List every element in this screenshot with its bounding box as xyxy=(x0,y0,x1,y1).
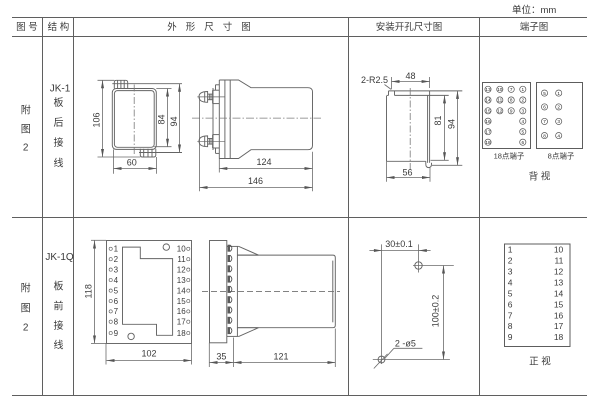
svg-text:1: 1 xyxy=(114,245,119,254)
svg-text:单位：mm: 单位：mm xyxy=(512,4,556,16)
svg-text:18: 18 xyxy=(554,332,564,342)
svg-text:2: 2 xyxy=(508,256,513,266)
svg-text:后: 后 xyxy=(54,117,64,129)
svg-text:94: 94 xyxy=(169,116,179,126)
svg-text:30±0.1: 30±0.1 xyxy=(385,239,412,249)
svg-text:13: 13 xyxy=(177,276,186,285)
svg-text:图 号: 图 号 xyxy=(16,22,38,33)
svg-text:7: 7 xyxy=(543,119,546,124)
svg-text:附: 附 xyxy=(21,104,31,117)
svg-text:15: 15 xyxy=(177,297,186,306)
svg-text:14: 14 xyxy=(554,288,564,298)
svg-text:图: 图 xyxy=(21,124,31,136)
svg-text:15: 15 xyxy=(485,109,491,114)
svg-text:外形尺寸图: 外形尺寸图 xyxy=(167,21,260,33)
svg-text:10: 10 xyxy=(177,245,186,254)
svg-text:2-R2.5: 2-R2.5 xyxy=(361,75,388,85)
svg-text:16: 16 xyxy=(554,310,564,320)
svg-text:9: 9 xyxy=(114,329,119,338)
svg-text:4: 4 xyxy=(521,119,524,124)
svg-text:附: 附 xyxy=(21,282,31,295)
svg-text:1: 1 xyxy=(557,91,560,96)
svg-text:4: 4 xyxy=(557,133,560,138)
svg-text:10: 10 xyxy=(554,245,564,255)
svg-text:2: 2 xyxy=(521,98,524,103)
svg-text:3: 3 xyxy=(557,119,560,124)
svg-text:11: 11 xyxy=(497,98,502,103)
svg-text:13: 13 xyxy=(485,87,491,92)
svg-text:接: 接 xyxy=(54,319,64,332)
svg-text:端子图: 端子图 xyxy=(520,21,549,33)
svg-text:线: 线 xyxy=(54,339,64,352)
svg-text:18点端子: 18点端子 xyxy=(494,151,525,161)
svg-text:2: 2 xyxy=(23,323,29,334)
svg-text:5: 5 xyxy=(543,91,546,96)
svg-text:81: 81 xyxy=(433,115,443,125)
svg-text:11: 11 xyxy=(554,256,563,266)
svg-text:8: 8 xyxy=(543,133,546,138)
svg-text:板: 板 xyxy=(54,96,64,109)
svg-text:12: 12 xyxy=(554,267,564,277)
svg-text:3: 3 xyxy=(114,265,119,274)
svg-text:14: 14 xyxy=(485,98,491,103)
svg-text:17: 17 xyxy=(485,129,491,134)
svg-text:9: 9 xyxy=(508,332,513,342)
svg-text:84: 84 xyxy=(157,114,167,124)
svg-text:8: 8 xyxy=(114,318,119,327)
svg-text:1: 1 xyxy=(521,87,524,92)
svg-text:3: 3 xyxy=(521,109,524,114)
svg-text:6: 6 xyxy=(521,140,524,145)
svg-text:7: 7 xyxy=(114,307,119,316)
svg-text:94: 94 xyxy=(446,119,456,129)
svg-text:106: 106 xyxy=(92,112,102,127)
svg-text:5: 5 xyxy=(114,286,119,295)
svg-text:JK-1: JK-1 xyxy=(50,84,71,95)
svg-text:板: 板 xyxy=(54,279,64,292)
svg-text:7: 7 xyxy=(508,310,513,320)
svg-text:48: 48 xyxy=(405,71,415,81)
svg-text:9: 9 xyxy=(510,109,513,114)
svg-text:4: 4 xyxy=(508,277,513,287)
svg-text:18: 18 xyxy=(485,140,491,145)
svg-text:8: 8 xyxy=(508,321,513,331)
svg-text:1: 1 xyxy=(508,245,513,255)
svg-text:102: 102 xyxy=(141,348,156,358)
svg-text:8点端子: 8点端子 xyxy=(548,151,575,161)
svg-text:35: 35 xyxy=(216,351,226,361)
svg-text:JK-1Q: JK-1Q xyxy=(45,252,74,263)
svg-text:17: 17 xyxy=(177,318,186,327)
svg-text:2: 2 xyxy=(114,255,119,264)
svg-text:接: 接 xyxy=(54,136,64,149)
svg-text:15: 15 xyxy=(554,299,564,309)
svg-text:6: 6 xyxy=(114,297,119,306)
svg-text:118: 118 xyxy=(83,284,93,298)
svg-text:60: 60 xyxy=(127,158,137,168)
svg-text:结 构: 结 构 xyxy=(48,21,70,33)
svg-text:正 视: 正 视 xyxy=(529,355,551,367)
svg-text:100±0.2: 100±0.2 xyxy=(430,295,440,327)
svg-text:16: 16 xyxy=(177,307,186,316)
svg-text:安装开孔尺寸图: 安装开孔尺寸图 xyxy=(376,21,443,33)
svg-text:线: 线 xyxy=(54,157,64,170)
svg-text:13: 13 xyxy=(554,277,564,287)
svg-text:4: 4 xyxy=(114,276,119,285)
svg-text:16: 16 xyxy=(485,119,491,124)
svg-text:前: 前 xyxy=(54,300,64,313)
svg-text:5: 5 xyxy=(508,288,513,298)
svg-text:146: 146 xyxy=(248,176,263,186)
svg-text:56: 56 xyxy=(402,167,412,177)
svg-text:3: 3 xyxy=(508,267,513,277)
svg-text:121: 121 xyxy=(273,351,288,361)
svg-text:12: 12 xyxy=(177,265,186,274)
svg-text:2 -ø5: 2 -ø5 xyxy=(395,338,416,348)
svg-text:124: 124 xyxy=(256,157,271,167)
svg-text:11: 11 xyxy=(177,255,186,264)
svg-text:2: 2 xyxy=(23,143,29,154)
svg-text:17: 17 xyxy=(554,321,564,331)
svg-text:18: 18 xyxy=(177,329,186,338)
svg-text:10: 10 xyxy=(497,87,503,92)
svg-text:图: 图 xyxy=(21,303,31,315)
svg-text:7: 7 xyxy=(510,87,513,92)
svg-text:2: 2 xyxy=(557,105,560,110)
svg-text:6: 6 xyxy=(508,299,513,309)
svg-text:6: 6 xyxy=(543,105,546,110)
svg-text:8: 8 xyxy=(510,98,513,103)
svg-text:12: 12 xyxy=(497,109,503,114)
svg-text:5: 5 xyxy=(521,129,524,134)
svg-text:14: 14 xyxy=(177,286,186,295)
svg-text:背 视: 背 视 xyxy=(529,171,551,183)
